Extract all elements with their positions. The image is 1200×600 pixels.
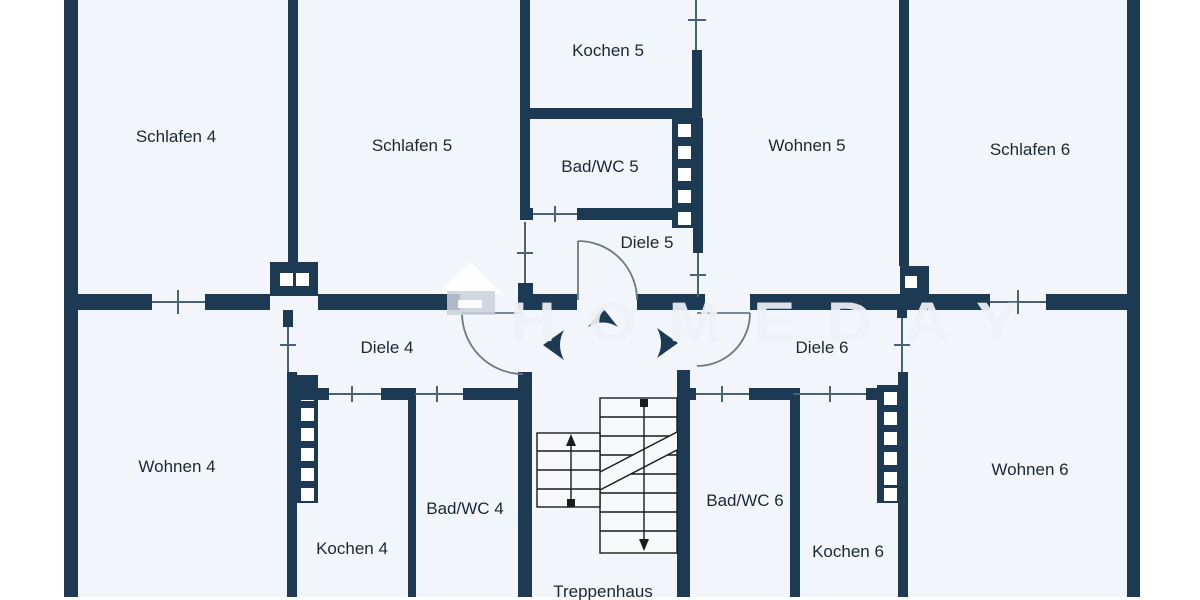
room-label-schlafen-4: Schlafen 4 <box>136 127 216 146</box>
room-label-schlafen-6: Schlafen 6 <box>990 140 1070 159</box>
room-label-kochen-4: Kochen 4 <box>316 539 388 558</box>
room-label-bad-wc-6: Bad/WC 6 <box>706 491 783 510</box>
room-label-wohnen-5: Wohnen 5 <box>768 136 845 155</box>
floor-plan: HOMEDAY Schlafen 4 Schlafen 5 Kochen 5 B… <box>0 0 1200 600</box>
floor-plan-page: HOMEDAY Schlafen 4 Schlafen 5 Kochen 5 B… <box>0 0 1200 600</box>
room-label-bad-wc-5: Bad/WC 5 <box>561 157 638 176</box>
room-label-kochen-5: Kochen 5 <box>572 41 644 60</box>
room-label-schlafen-5: Schlafen 5 <box>372 136 452 155</box>
room-label-treppenhaus: Treppenhaus <box>553 582 653 600</box>
room-label-diele-6: Diele 6 <box>796 338 849 357</box>
room-label-diele-4: Diele 4 <box>361 338 414 357</box>
room-label-wohnen-4: Wohnen 4 <box>138 457 215 476</box>
room-label-bad-wc-4: Bad/WC 4 <box>426 499 503 518</box>
room-label-diele-5: Diele 5 <box>621 233 674 252</box>
room-label-kochen-6: Kochen 6 <box>812 542 884 561</box>
room-label-wohnen-6: Wohnen 6 <box>991 460 1068 479</box>
watermark-text: HOMEDAY <box>510 290 1050 353</box>
